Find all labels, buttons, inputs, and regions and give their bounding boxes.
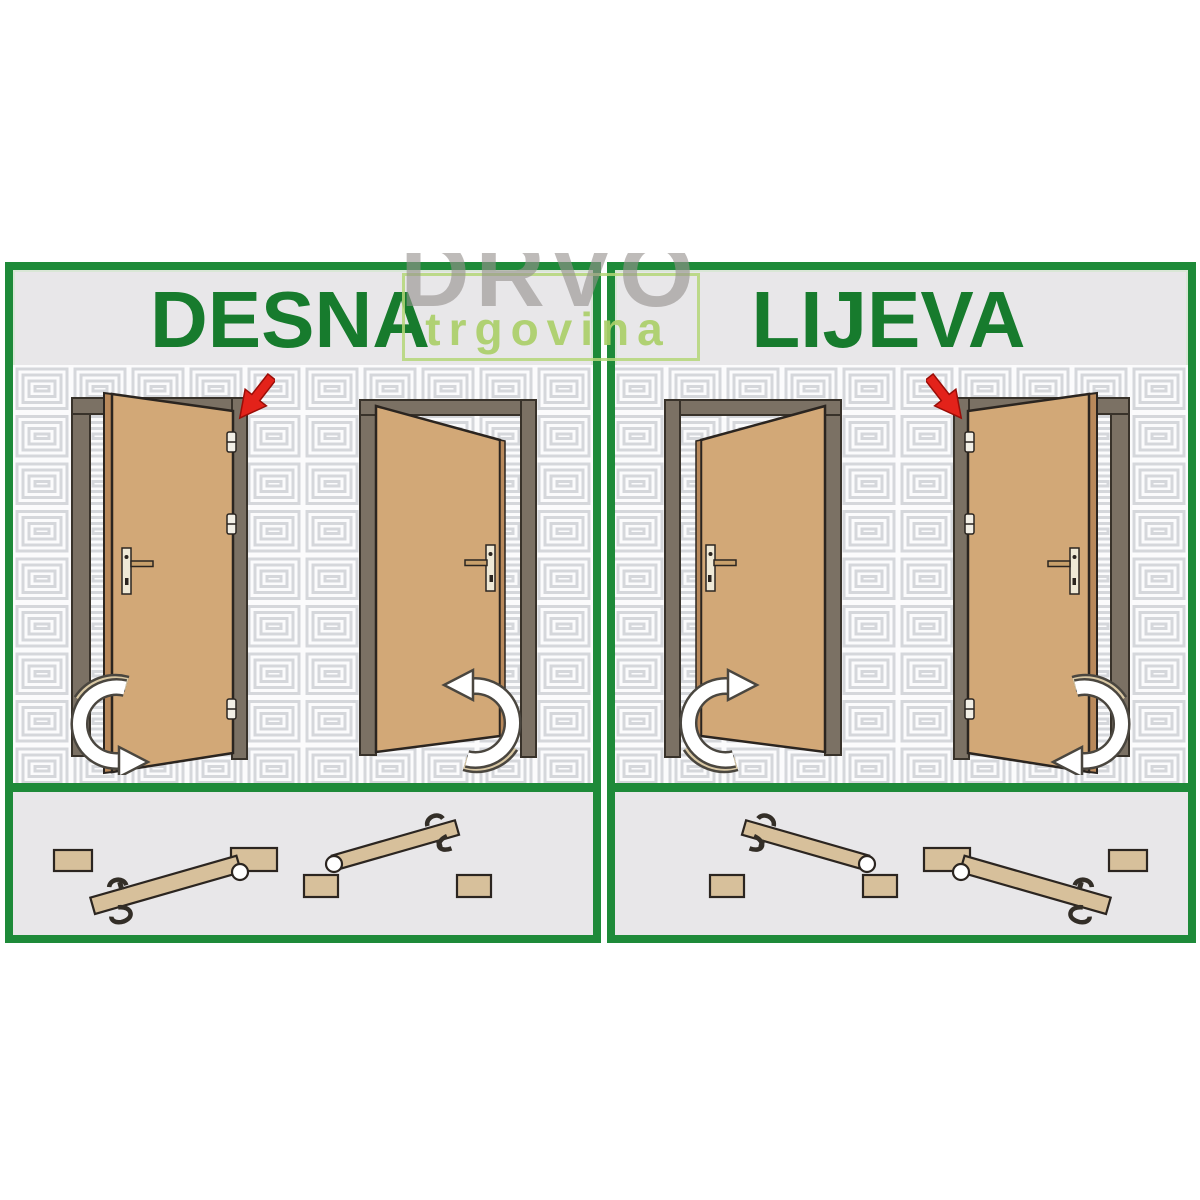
panel-desna-content: DESNA [13, 270, 593, 935]
topdown-door-hinge-right [88, 846, 246, 928]
wall-block [710, 875, 744, 897]
hinge-pivot-icon [232, 864, 248, 880]
wall-block [457, 875, 491, 897]
topdown-section-desna [13, 792, 593, 935]
topdown-door-hinge-left [329, 811, 462, 881]
panel-lijeva-graphics [615, 270, 1188, 935]
door-open-away-hinge-left [352, 393, 552, 775]
panel-lijeva: LIJEVA [607, 262, 1196, 943]
panel-divider [615, 783, 1188, 792]
door-open-away-hinge-right [649, 393, 849, 775]
topdown-diagrams [608, 792, 1188, 935]
panel-desna-title: DESNA [0, 280, 580, 360]
door-leaf [376, 406, 500, 752]
panel-divider [13, 783, 593, 792]
topdown-section-lijeva [615, 792, 1188, 935]
door-open-toward-hinge-right [65, 372, 275, 775]
door-orientation-diagram: DESNA [0, 0, 1200, 1200]
hinge-pivot-icon [859, 856, 875, 872]
panel-lijeva-title: LIJEVA [602, 280, 1175, 360]
hinge-pivot-icon [953, 864, 969, 880]
panel-desna: DESNA [5, 262, 601, 943]
door-open-toward-hinge-left [926, 372, 1136, 775]
wall-block [863, 875, 897, 897]
hinge-pivot-icon [326, 856, 342, 872]
wall-lijeva [615, 365, 1188, 783]
wall-desna [13, 365, 593, 783]
wall-block [304, 875, 338, 897]
topdown-diagrams [13, 792, 593, 935]
topdown-door-hinge-left [739, 811, 872, 881]
topdown-door-hinge-right [956, 846, 1114, 928]
wall-block [54, 850, 92, 871]
door-leaf [701, 406, 825, 752]
wall-block [1109, 850, 1147, 871]
